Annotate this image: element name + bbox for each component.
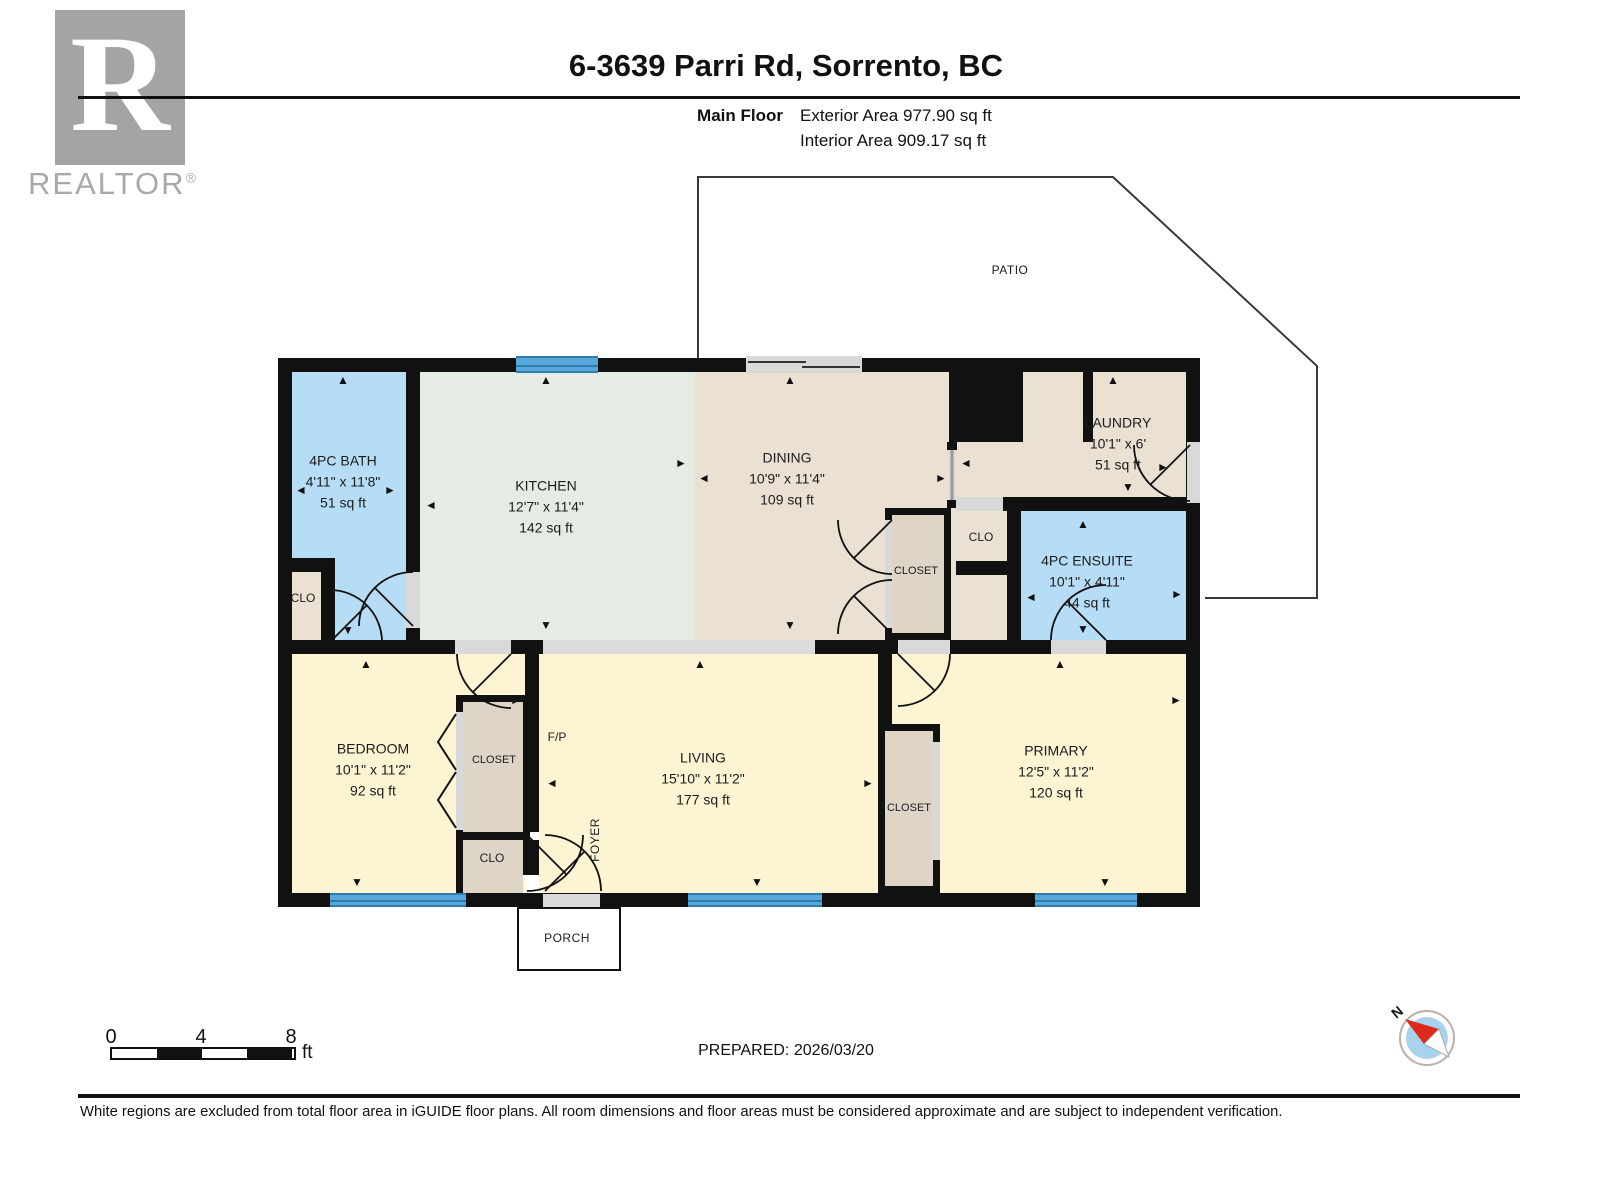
- direction-arrow-icon: ▼: [784, 619, 796, 631]
- room-label-ensuite: 4PC ENSUITE10'1" x 4'11"44 sq ft: [1041, 551, 1133, 614]
- label-fireplace: F/P: [548, 730, 567, 744]
- room-label-kitchen: KITCHEN12'7" x 11'4"142 sq ft: [508, 476, 584, 539]
- direction-arrow-icon: ►: [862, 777, 874, 789]
- patio-outline: [698, 177, 1317, 598]
- label-porch: PORCH: [544, 931, 590, 945]
- direction-arrow-icon: ►: [510, 694, 522, 706]
- room-label-bedroom: BEDROOM10'1" x 11'2"92 sq ft: [335, 739, 411, 802]
- label-clo-hall: CLO: [969, 530, 994, 544]
- direction-arrow-icon: ◄: [425, 499, 437, 511]
- direction-arrow-icon: ▲: [360, 658, 372, 670]
- direction-arrow-icon: ►: [1157, 461, 1169, 473]
- direction-arrow-icon: ►: [1171, 588, 1183, 600]
- label-closet-dining: CLOSET: [894, 565, 938, 577]
- direction-arrow-icon: ▼: [342, 624, 354, 636]
- direction-arrow-icon: ▼: [1122, 481, 1134, 493]
- direction-arrow-icon: ►: [384, 484, 396, 496]
- label-foyer: FOYER: [588, 818, 602, 862]
- label-clo-bedroom: CLO: [480, 851, 505, 865]
- direction-arrow-icon: ◄: [1025, 591, 1037, 603]
- label-closet-primary: CLOSET: [887, 802, 931, 814]
- direction-arrow-icon: ▲: [1054, 658, 1066, 670]
- compass-icon: [1400, 1011, 1454, 1065]
- direction-arrow-icon: ◄: [960, 457, 972, 469]
- direction-arrow-icon: ▼: [540, 619, 552, 631]
- direction-arrow-icon: ▲: [694, 658, 706, 670]
- direction-arrow-icon: ◄: [295, 484, 307, 496]
- label-patio: PATIO: [992, 263, 1029, 277]
- label-clo-bath: CLO: [291, 591, 316, 605]
- room-label-dining: DINING10'9" x 11'4"109 sq ft: [749, 448, 825, 511]
- label-closet-bedroom: CLOSET: [472, 754, 516, 766]
- direction-arrow-icon: ▲: [337, 374, 349, 386]
- room-label-primary: PRIMARY12'5" x 11'2"120 sq ft: [1018, 741, 1094, 804]
- room-label-laundry: LAUNDRY10'1" x 6'51 sq ft: [1085, 413, 1152, 476]
- direction-arrow-icon: ▲: [540, 374, 552, 386]
- room-label-living: LIVING15'10" x 11'2"177 sq ft: [661, 748, 745, 811]
- direction-arrow-icon: ▲: [1107, 374, 1119, 386]
- direction-arrow-icon: ◄: [698, 472, 710, 484]
- direction-arrow-icon: ►: [1170, 694, 1182, 706]
- room-label-bath: 4PC BATH4'11" x 11'8"51 sq ft: [306, 451, 381, 514]
- direction-arrow-icon: ▼: [1099, 876, 1111, 888]
- direction-arrow-icon: ▲: [784, 374, 796, 386]
- direction-arrow-icon: ▲: [1077, 518, 1089, 530]
- direction-arrow-icon: ◄: [546, 777, 558, 789]
- direction-arrow-icon: ▼: [1077, 623, 1089, 635]
- plan-linework: [0, 0, 1600, 1200]
- direction-arrow-icon: ►: [675, 457, 687, 469]
- direction-arrow-icon: ▼: [751, 876, 763, 888]
- direction-arrow-icon: ►: [935, 472, 947, 484]
- direction-arrow-icon: ▼: [351, 876, 363, 888]
